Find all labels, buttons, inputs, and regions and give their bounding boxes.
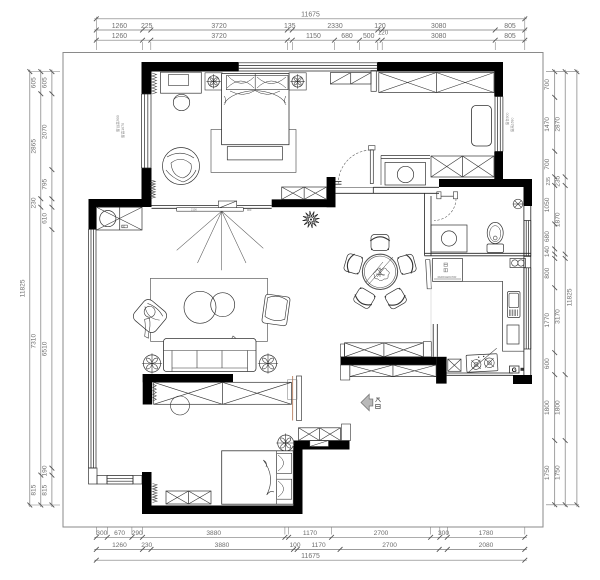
svg-text:610: 610 — [41, 213, 48, 224]
svg-text:窗高1690: 窗高1690 — [510, 118, 515, 132]
svg-text:11675: 11675 — [301, 12, 320, 19]
svg-text:700: 700 — [544, 79, 551, 90]
svg-text:窗台900: 窗台900 — [505, 112, 510, 125]
svg-text:2870: 2870 — [555, 117, 562, 132]
svg-text:3880: 3880 — [206, 530, 221, 537]
svg-text:235: 235 — [555, 175, 562, 186]
svg-text:2330: 2330 — [327, 23, 342, 30]
svg-text:11825: 11825 — [566, 288, 573, 306]
svg-text:1470: 1470 — [544, 117, 551, 132]
svg-text:600: 600 — [544, 358, 551, 369]
svg-text:1260: 1260 — [112, 33, 127, 40]
svg-text:140: 140 — [544, 246, 551, 257]
svg-text:700: 700 — [544, 158, 551, 169]
svg-text:805: 805 — [504, 23, 516, 30]
svg-text:3080: 3080 — [431, 23, 446, 30]
svg-text:2700: 2700 — [374, 530, 389, 537]
svg-text:3170: 3170 — [555, 309, 562, 324]
svg-text:3720: 3720 — [211, 33, 226, 40]
svg-text:1780: 1780 — [479, 530, 494, 537]
svg-text:670: 670 — [114, 530, 125, 537]
svg-text:7310: 7310 — [30, 334, 37, 349]
svg-text:290: 290 — [132, 530, 143, 537]
svg-text:窗台高900: 窗台高900 — [115, 115, 120, 132]
svg-text:1170: 1170 — [303, 530, 318, 537]
svg-text:230: 230 — [141, 542, 152, 549]
svg-text:1800: 1800 — [555, 400, 562, 415]
svg-text:1050: 1050 — [544, 197, 551, 212]
svg-text:230: 230 — [30, 197, 37, 208]
svg-text:135: 135 — [284, 23, 296, 30]
svg-text:795: 795 — [41, 178, 48, 189]
svg-text:1150: 1150 — [306, 33, 321, 40]
svg-text:100: 100 — [289, 542, 300, 549]
svg-text:605: 605 — [41, 77, 48, 88]
svg-text:3880: 3880 — [215, 542, 230, 549]
svg-text:2080: 2080 — [479, 542, 494, 549]
svg-text:1260: 1260 — [112, 542, 127, 549]
svg-text:1750: 1750 — [544, 465, 551, 480]
svg-text:窗高1670: 窗高1670 — [120, 123, 125, 138]
svg-text:605: 605 — [30, 77, 37, 88]
svg-text:805: 805 — [504, 33, 516, 40]
svg-text:680: 680 — [544, 231, 551, 242]
svg-text:REFRIGERATOR: REFRIGERATOR — [438, 276, 457, 279]
svg-text:2865: 2865 — [30, 139, 37, 154]
svg-text:120: 120 — [378, 30, 389, 37]
svg-text:2070: 2070 — [41, 124, 48, 139]
svg-text:500: 500 — [363, 33, 375, 40]
svg-text:11825: 11825 — [19, 279, 26, 297]
svg-text:11675: 11675 — [301, 553, 320, 560]
svg-text:800: 800 — [544, 267, 551, 278]
svg-text:235: 235 — [546, 177, 552, 186]
svg-text:1170: 1170 — [312, 542, 327, 549]
svg-text:2100: 2100 — [191, 208, 197, 212]
svg-text:3080: 3080 — [431, 33, 446, 40]
svg-text:190: 190 — [41, 465, 48, 476]
svg-text:225: 225 — [141, 23, 153, 30]
svg-text:680: 680 — [341, 33, 353, 40]
svg-text:2700: 2700 — [382, 542, 397, 549]
svg-text:815: 815 — [41, 484, 48, 495]
svg-text:300: 300 — [96, 530, 107, 537]
svg-text:1750: 1750 — [555, 465, 562, 480]
svg-text:1870: 1870 — [555, 212, 562, 227]
svg-text:815: 815 — [30, 484, 37, 495]
svg-text:900: 900 — [247, 208, 252, 212]
svg-text:6510: 6510 — [41, 341, 48, 356]
svg-text:1770: 1770 — [544, 313, 551, 328]
svg-text:1800: 1800 — [544, 400, 551, 415]
svg-text:1260: 1260 — [112, 23, 127, 30]
svg-text:3720: 3720 — [211, 23, 226, 30]
